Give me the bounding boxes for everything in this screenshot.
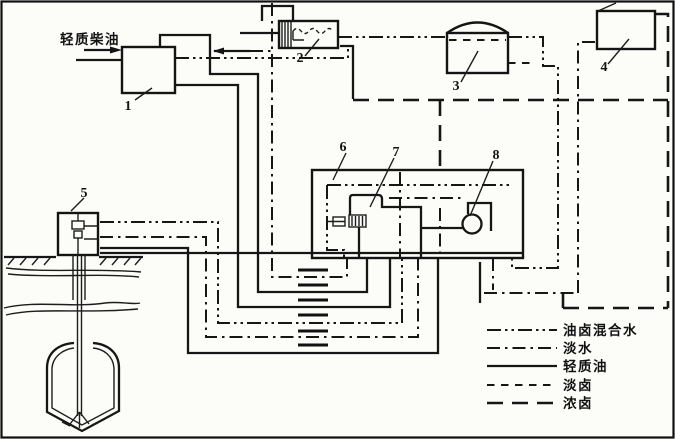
ground-hatch	[8, 258, 141, 265]
legend-label: 油卤混合水	[563, 322, 638, 338]
tank-2-inner	[293, 31, 304, 40]
legend-label: 浓卤	[563, 395, 593, 411]
label-3: 3	[453, 79, 460, 94]
injector-hatch	[352, 216, 363, 226]
label-4: 4	[601, 60, 608, 75]
tank-1	[122, 47, 175, 93]
legend-row: 浓卤	[487, 395, 593, 411]
label-8: 8	[493, 148, 500, 163]
feed-label: 轻质柴油	[60, 31, 120, 47]
valve-unit-7	[327, 215, 366, 227]
process-flow-diagram: 1 2 3 4 5 6 7 8 轻质柴油 油卤混合水 淡水 轻质油 淡卤 浓卤	[0, 0, 675, 439]
well-tubing	[78, 255, 82, 416]
legend-label: 轻质油	[563, 358, 608, 374]
label-7: 7	[393, 145, 400, 160]
tank-2	[279, 21, 338, 48]
pipe	[262, 6, 293, 21]
pipes-short-dash	[449, 40, 536, 63]
xmas-tree-valve-2	[74, 231, 82, 238]
cavern-inner-wall	[52, 348, 114, 425]
salt-cavern	[47, 255, 119, 431]
legend-label: 淡卤	[563, 377, 593, 393]
pipe	[508, 37, 558, 268]
legend-row: 轻质油	[487, 358, 608, 374]
pipe	[340, 46, 353, 99]
label-5: 5	[81, 186, 88, 201]
pump-circle	[463, 215, 482, 234]
legend-row: 油卤混合水	[487, 322, 638, 338]
xmas-tree-valve-1	[72, 221, 84, 229]
legend-row: 淡水	[487, 340, 593, 356]
legend-row: 淡卤	[487, 377, 593, 393]
label-2: 2	[297, 51, 304, 66]
pipe	[578, 42, 595, 293]
hatch-band	[282, 22, 291, 47]
wellhead-assembly	[58, 213, 98, 255]
diagram-page: 1 2 3 4 5 6 7 8 轻质柴油 油卤混合水 淡水 轻质油 淡卤 浓卤	[0, 0, 675, 439]
arrow-right-icon	[110, 47, 122, 54]
stratum-line	[4, 302, 140, 308]
pipe	[272, 3, 347, 277]
legend-label: 淡水	[563, 340, 593, 356]
pipe	[655, 14, 668, 308]
pipe	[175, 48, 348, 58]
label-1: 1	[125, 99, 132, 114]
tank-3	[447, 23, 508, 74]
liquid-level-wavy	[293, 29, 333, 34]
legend: 油卤混合水 淡水 轻质油 淡卤 浓卤	[487, 322, 638, 411]
tank-3-dome	[447, 23, 508, 34]
leader-line	[333, 153, 346, 180]
arrow-left-icon	[213, 48, 224, 55]
well-casing	[73, 255, 85, 300]
leader-line	[608, 39, 629, 64]
stratum-line	[6, 309, 138, 315]
pipes-dash-dot-dot	[100, 37, 558, 323]
label-6: 6	[340, 140, 347, 155]
pipes-long-dash	[353, 14, 668, 308]
leader-line	[461, 51, 478, 82]
pump-8	[463, 203, 492, 234]
